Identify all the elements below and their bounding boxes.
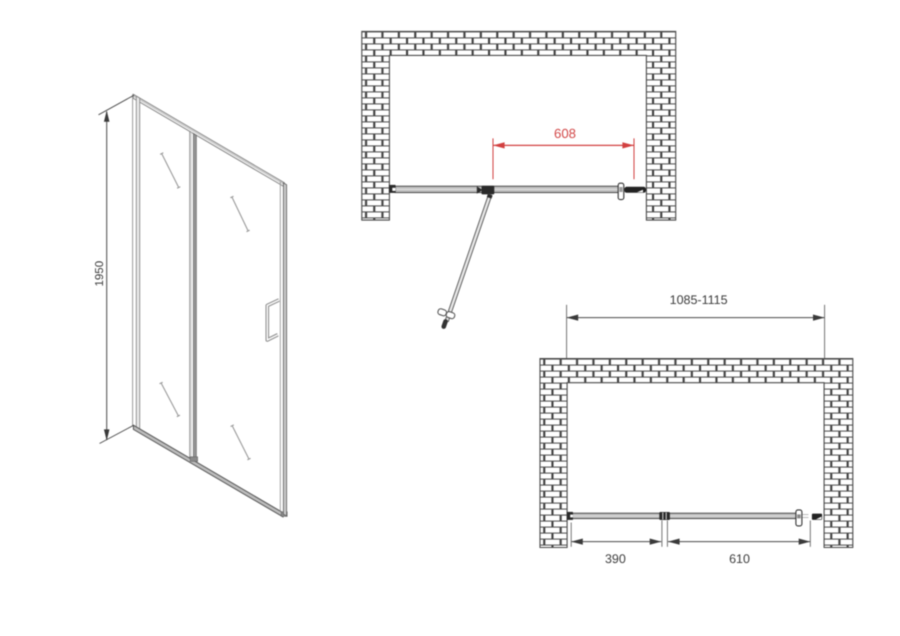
svg-text:390: 390	[605, 552, 626, 566]
svg-text:610: 610	[729, 552, 750, 566]
svg-text:1950: 1950	[94, 261, 106, 287]
svg-text:608: 608	[554, 126, 576, 141]
svg-text:1085-1115: 1085-1115	[670, 293, 728, 307]
